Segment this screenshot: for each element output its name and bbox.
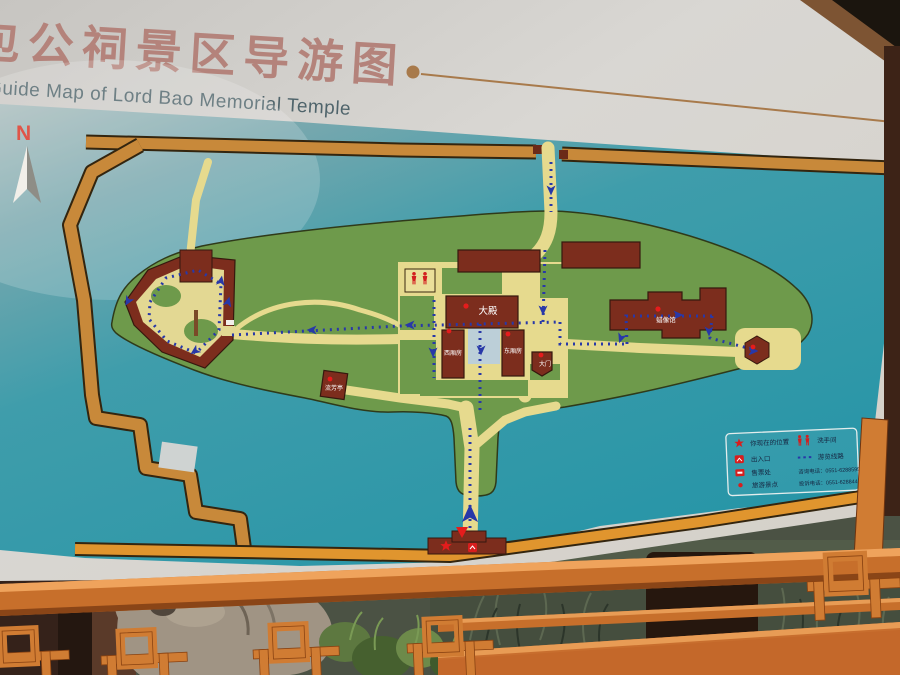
stone-stele: [194, 310, 198, 336]
legend-entrance-icon: [735, 455, 744, 463]
entrance-icon: [468, 543, 477, 552]
label-west-wing: 西厢房: [444, 349, 462, 357]
scene: 包公祠景区导游图 Guide Map of Lord Bao Memorial …: [0, 0, 900, 675]
label-main-hall: 大殿: [478, 305, 498, 317]
north-building-east: [562, 242, 640, 268]
legend: 你现在的位置 出入口 售票处 旅游景点 洗手间 游览线路 咨询电话：0551-6…: [726, 428, 864, 496]
legend-ticket-icon: [735, 469, 744, 476]
pavilion-building: [320, 370, 347, 399]
photo-of-guide-map-sign: 包公祠景区导游图 Guide Map of Lord Bao Memorial …: [0, 0, 900, 675]
label-gate: 大门: [539, 360, 551, 368]
compass-n-label: N: [16, 122, 31, 145]
enclosure-hall: [180, 250, 212, 282]
north-building-west: [458, 250, 540, 272]
label-pavilion: 流芳亭: [325, 384, 343, 392]
wall-break-pier: [158, 442, 197, 473]
wall-gate-label-mark: [226, 320, 234, 325]
label-wax-museum: 蜡像馆: [656, 315, 676, 324]
label-east-wing: 东厢房: [504, 347, 522, 355]
courtyard-pond: [468, 328, 500, 364]
restroom-building: [405, 269, 435, 292]
